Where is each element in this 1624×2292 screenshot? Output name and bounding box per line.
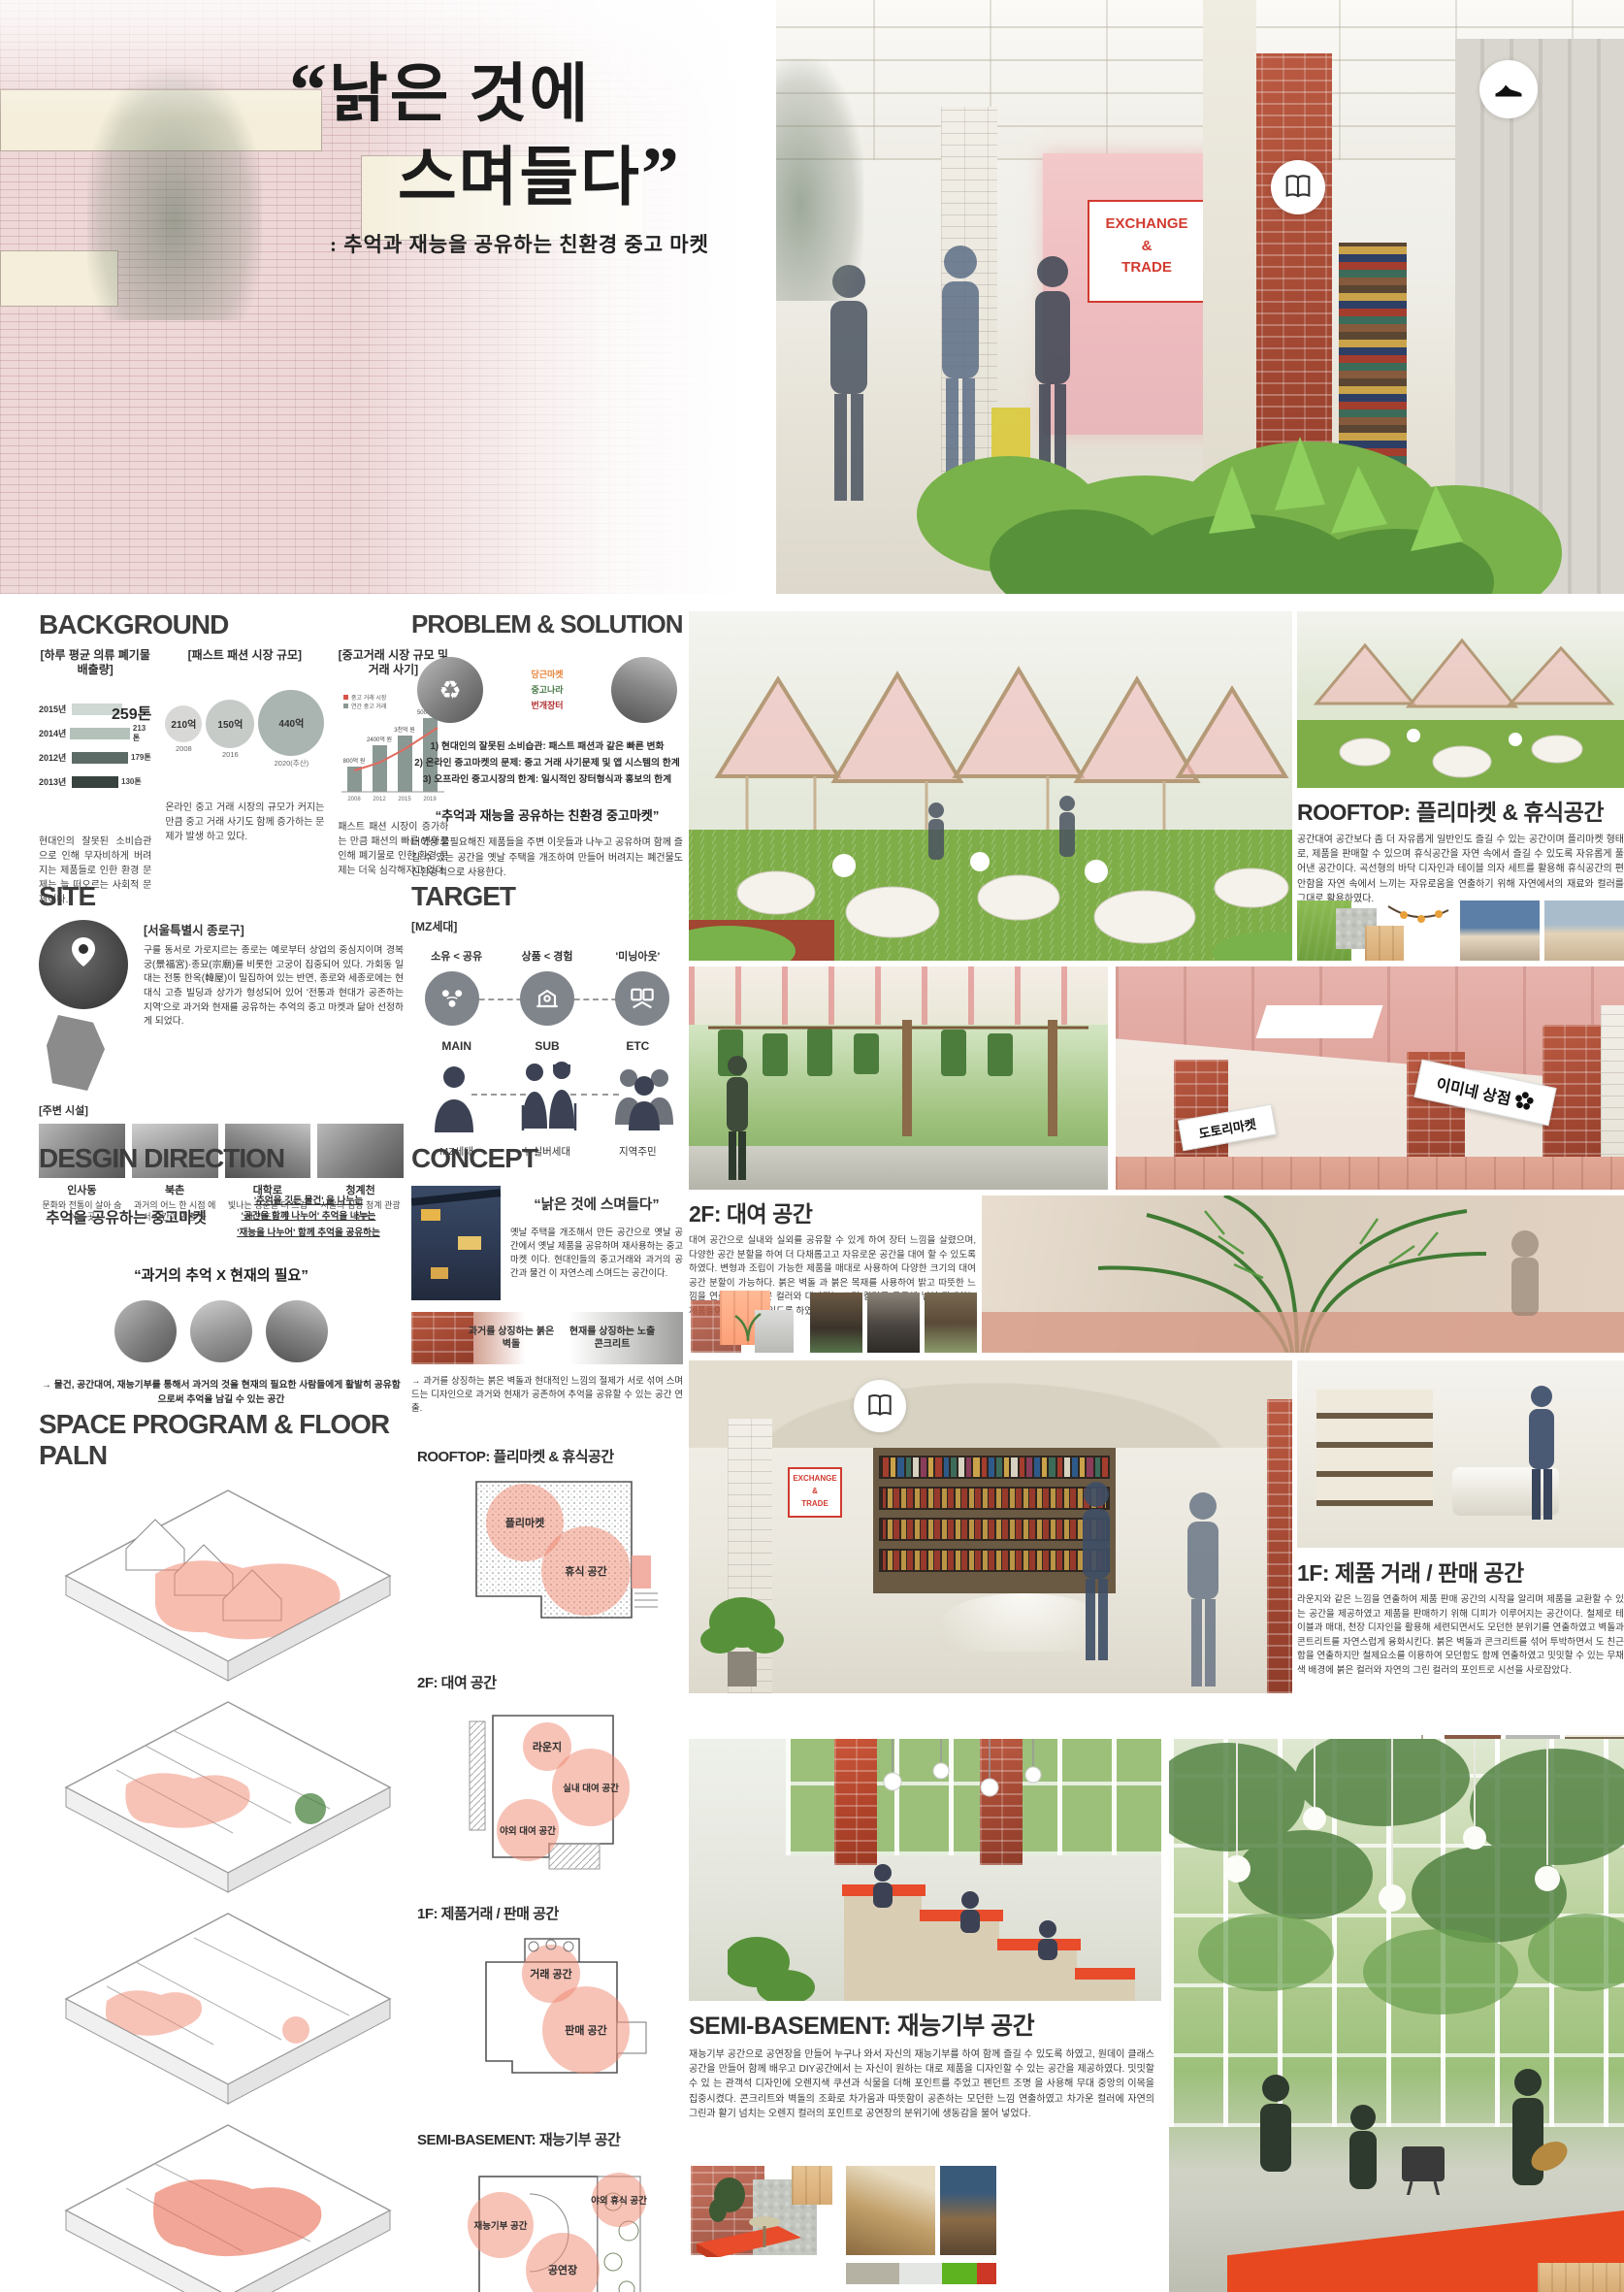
residents-group-icon <box>613 1064 675 1130</box>
pendant-globes <box>1198 1739 1595 1952</box>
key-photo <box>190 1300 252 1362</box>
problem-item: 2) 온라인 중고마켓의 문제: 중고 거래 사기문제 및 앱 시스템의 한계 <box>411 755 683 771</box>
rooftop-ref-photo <box>1460 900 1540 961</box>
lit-window <box>458 1236 481 1250</box>
trait-label: 상품 < 경험 <box>502 948 592 964</box>
site-text: 구를 동서로 가로지르는 종로는 예로부터 상업의 중심지이며 경복궁(景福宮)… <box>144 944 404 1030</box>
basement-zone-title: SEMI-BASEMENT: 재능기부 공간 <box>689 2007 1166 2042</box>
svg-text:실내 대여 공간: 실내 대여 공간 <box>563 1783 619 1794</box>
wood-step <box>1538 2263 1624 2292</box>
svg-text:2400억 원: 2400억 원 <box>367 736 392 743</box>
problem-list: 1) 현대인의 잘못된 소비습관: 패스트 패션과 같은 빠른 변화 2) 온라… <box>411 738 683 788</box>
palette-swatch <box>942 2263 977 2284</box>
foreground-plants <box>893 320 1572 594</box>
f1-people <box>1057 1477 1290 1693</box>
tier-rank: MAIN <box>411 1039 502 1053</box>
target-title: TARGET <box>411 881 683 912</box>
problem-item: 1) 현대인의 잘못된 소비습관: 패스트 패션과 같은 빠른 변화 <box>411 738 683 755</box>
close-quote: ” <box>641 131 681 215</box>
svg-text:야외 휴식 공간: 야외 휴식 공간 <box>591 2195 647 2207</box>
pink-wood-floor <box>1116 1157 1624 1190</box>
hanging-garments <box>708 1020 1088 1136</box>
plan-title-2f: 2F: 대여 공간 <box>417 1672 681 1692</box>
tier-rank: SUB <box>502 1039 592 1053</box>
bubble: 210억 <box>165 705 202 742</box>
shelf-wall <box>1316 1390 1433 1506</box>
palette-swatch <box>846 2263 899 2284</box>
market-photo <box>611 657 677 723</box>
potted-plant <box>698 1584 786 1693</box>
solution-text: 더이상 불필요해진 제품들을 주변 이웃들과 나누고 공유하며 함께 즐길 수 … <box>411 835 683 881</box>
book-icon <box>1271 160 1325 214</box>
string-lights-icon <box>1386 900 1450 939</box>
floorplans-column: ROOFTOP: 플리마켓 & 휴식공간 플리마켓 휴식 공간 2F: 대여 공… <box>417 1446 681 2292</box>
background-section: BACKGROUND [하루 평균 의류 폐기물 배출량] 259톤 2015년… <box>39 609 404 907</box>
wood-swatch <box>792 2166 832 2205</box>
concept-quote: “낡은 것에 스며들다” <box>510 1194 683 1214</box>
basement-ref-photo <box>846 2166 935 2255</box>
brick-sliver <box>1267 1399 1292 1693</box>
bar <box>70 728 130 739</box>
f2-render-right: 도토리마켓 이미네 상점 <box>1116 966 1624 1190</box>
roof-line <box>411 1189 501 1206</box>
orange-bench-icon <box>697 2209 803 2257</box>
rooftop-scene-side <box>1297 611 1624 788</box>
rooftop-render-side <box>1297 611 1624 788</box>
basement-render-right <box>1169 1739 1624 2292</box>
recycle-photo: ♻ <box>417 657 483 723</box>
space-program-title: SPACE PROGRAM & FLOOR PALN <box>39 1409 409 1471</box>
hero-section: EXCHANGE & TRADE <box>0 0 1624 594</box>
app-logos: 당근마켓 중고나라 번개장터 <box>505 667 589 714</box>
plan-title-1f: 1F: 제품거래 / 판매 공간 <box>417 1903 681 1923</box>
sharing-icon <box>425 971 479 1026</box>
floorplan-rooftop: 플리마켓 휴식 공간 <box>433 1472 666 1642</box>
map-pin-icon <box>72 937 95 966</box>
svg-text:플리마켓: 플리마켓 <box>505 1516 544 1529</box>
poster-subtitle: : 추억과 재능을 공유하는 친환경 중고 마켓 <box>330 229 929 258</box>
facilities-label: [주변 시설] <box>39 1102 404 1118</box>
chart-clothing-waste: [하루 평균 의류 폐기물 배출량] 259톤 2015년 2014년213톤 … <box>39 648 151 907</box>
rooftop-caption: ROOFTOP: 플리마켓 & 휴식공간 공간대여 공간보다 좀 더 자유롭게 … <box>1297 794 1624 906</box>
book-icon <box>854 1380 906 1432</box>
app-name: 중고나라 <box>505 682 589 698</box>
basement-caption: SEMI-BASEMENT: 재능기부 공간 재능기부 공간으로 공연장을 만들… <box>689 2007 1166 2121</box>
trait-label: '미닝아웃' <box>593 948 683 964</box>
poster-title: “낡은 것에 스며들다” <box>289 49 929 215</box>
shoe-icon <box>1479 60 1538 118</box>
bubble: 150억 <box>206 700 254 748</box>
basement-moodboard <box>691 2166 1166 2290</box>
tiered-seating <box>728 1846 1135 2001</box>
meaning-out-icon <box>615 971 669 1026</box>
rooftop-zone-text: 공간대여 공간보다 좀 더 자유롭게 일반인도 즐길 수 있는 공간이며 플리마… <box>1297 833 1624 906</box>
hero-title-block: “낡은 것에 스며들다” : 추억과 재능을 공유하는 친환경 중고 마켓 <box>289 49 929 258</box>
title-line1: 낡은 것에 <box>329 59 590 130</box>
trait-label: 소유 < 공유 <box>411 948 502 964</box>
space-program-section: SPACE PROGRAM & FLOOR PALN <box>39 1409 409 2292</box>
floorplan-2f: 라운지 실내 대여 공간 야외 대여 공간 <box>433 1698 666 1873</box>
f1-caption: 1F: 제품 거래 / 판매 공간 라운지와 같은 느낌을 연출하여 제품 판매… <box>1297 1555 1624 1678</box>
target-section: TARGET [MZ세대] 소유 < 공유 상품 < 경험 '미닝아웃' MAI… <box>411 881 683 1159</box>
svg-text:연간 중고 거래: 연간 중고 거래 <box>351 703 386 710</box>
basement-ref-photo <box>940 2166 996 2255</box>
rooftop-moodboard <box>1297 900 1624 961</box>
site-map <box>39 920 132 1091</box>
basement-render-left <box>689 1739 1161 2001</box>
svg-text:공연장: 공연장 <box>548 2263 577 2276</box>
plant-sprig <box>733 1308 763 1341</box>
pendant-lights <box>863 1739 1057 1807</box>
ceiling-light-panel <box>1255 1005 1382 1038</box>
people-photo <box>266 1300 328 1362</box>
problem-item: 3) 오프라인 중고시장의 한계: 일시적인 장터형식과 홍보의 한계 <box>411 771 683 788</box>
rooftop-zone-title: ROOFTOP: 플리마켓 & 휴식공간 <box>1297 794 1624 827</box>
direction-title: DESGIN DIRECTION <box>39 1143 404 1174</box>
experience-icon <box>520 971 574 1026</box>
direction-share-lines: '추억을 깃든 물건' 을 나누는 '공간을 함께 나누어' 추억을 나누는 '… <box>213 1194 404 1241</box>
material-past-label: 과거를 상징하는 붉은 벽돌 <box>468 1326 555 1351</box>
axonometric-diagram <box>39 1481 409 2292</box>
concept-title: CONCEPT <box>411 1143 683 1174</box>
f2-left-person <box>718 1054 757 1180</box>
palm-leaves <box>982 1195 1624 1353</box>
svg-text:야외 대여 공간: 야외 대여 공간 <box>500 1825 556 1837</box>
material-transition: 과거를 상징하는 붉은 벽돌 현재를 상징하는 노출 콘크리트 <box>411 1312 683 1364</box>
concept-conclusion: → 과거를 상징하는 붉은 벽돌과 현대적인 느낌의 절제가 서로 섞여 스며드… <box>411 1374 683 1415</box>
f2-zone-title: 2F: 대여 공간 <box>689 1195 976 1228</box>
design-direction-section: DESGIN DIRECTION 추억을 공유하는 중고마켓 '추억을 깃든 물… <box>39 1143 404 1407</box>
f2-ref-photo <box>925 1293 977 1353</box>
chart2-caption: 온라인 중고 거래 시장의 규모가 커지는 만큼 중고 거래 사기도 함께 증가… <box>165 801 324 844</box>
app-name: 당근마켓 <box>505 667 589 682</box>
lit-window <box>421 1209 440 1221</box>
brick-end <box>411 1312 473 1364</box>
chart1-highlight: 259톤 <box>112 701 151 724</box>
palm-photo <box>982 1195 1624 1353</box>
svg-text:2012: 2012 <box>374 797 387 802</box>
tier-rank: ETC <box>593 1039 683 1053</box>
f1-zone-title: 1F: 제품 거래 / 판매 공간 <box>1297 1555 1624 1588</box>
floorplan-1f: 거래 공간 판매 공간 <box>433 1929 666 2099</box>
pink-roof-frame <box>689 966 1108 1025</box>
rooftop-render <box>689 611 1292 961</box>
background-title: BACKGROUND <box>39 609 404 640</box>
exchange-trade-sign-small: EXCHANGE & TRADE <box>788 1467 842 1518</box>
sign-line: EXCHANGE <box>1089 213 1204 236</box>
material-present-label: 현재를 상징하는 노출 콘크리트 <box>568 1326 656 1351</box>
f2-render-left <box>689 966 1108 1190</box>
svg-text:재능기부 공간: 재능기부 공간 <box>473 2220 527 2232</box>
f1-render: EXCHANGE & TRADE <box>689 1360 1292 1693</box>
concept-text: 옛날 주택을 개조해서 만든 공간으로 옛날 공간에서 옛날 제품을 공유하며 … <box>510 1226 683 1280</box>
f1-zone-text: 라운지와 같은 느낌을 연출하여 제품 판매 공간의 시작을 알리며 제품을 교… <box>1297 1593 1624 1678</box>
bar <box>72 752 128 764</box>
concept-section: CONCEPT “낡은 것에 스며들다” 옛날 주택을 개조해서 만든 공간으로… <box>411 1143 683 1415</box>
f2-moodboard <box>691 1291 797 1353</box>
plan-title-basement: SEMI-BASEMENT: 재능기부 공간 <box>417 2129 681 2149</box>
solution-quote: “추억과 재능을 공유하는 친환경 중고마켓” <box>411 805 683 824</box>
rooftop-ref-photo <box>1544 900 1624 961</box>
site-location: [서울특별시 종로구] <box>144 920 404 938</box>
site-title: SITE <box>39 881 404 912</box>
lit-window <box>431 1267 448 1279</box>
direction-headline: 추억을 공유하는 중고마켓 <box>39 1206 213 1228</box>
svg-text:판매 공간: 판매 공간 <box>565 2023 607 2037</box>
svg-text:라운지: 라운지 <box>533 1740 562 1753</box>
f2-ref-photo <box>810 1293 862 1353</box>
f2-ref-photo <box>867 1293 920 1353</box>
silver-couple-icon <box>518 1061 578 1132</box>
direction-conclusion: → 물건, 공간대여, 재능기부를 통해서 과거의 것을 현재의 필요한 사람들… <box>39 1378 404 1407</box>
mz-person-icon <box>433 1064 475 1132</box>
open-quote: “ <box>289 48 329 132</box>
basement-zone-text: 재능기부 공간으로 공연장을 만들어 누구나 와서 자신의 재능기부를 하여 함… <box>689 2047 1154 2121</box>
svg-text:2015: 2015 <box>399 797 412 802</box>
direction-quote: “과거의 추억 X 현재의 필요” <box>39 1264 404 1285</box>
problem-title: PROBLEM & SOLUTION <box>411 609 683 639</box>
f1-side-person <box>1520 1384 1563 1520</box>
svg-text:휴식 공간: 휴식 공간 <box>565 1564 607 1578</box>
app-name: 번개장터 <box>505 698 589 713</box>
plan-title-rooftop: ROOFTOP: 플리마켓 & 휴식공간 <box>417 1446 681 1466</box>
svg-text:800억 원: 800억 원 <box>343 757 366 765</box>
palette-swatch <box>977 2263 996 2284</box>
palette-swatch <box>899 2263 942 2284</box>
memory-photo <box>114 1300 177 1362</box>
old-house-photo <box>411 1186 501 1300</box>
color-palette-strip <box>846 2263 996 2284</box>
f2-ref-photos <box>810 1293 977 1353</box>
problem-solution-section: PROBLEM & SOLUTION ♻ 당근마켓 중고나라 번개장터 1) 현… <box>411 609 683 881</box>
target-group: [MZ세대] <box>411 918 683 934</box>
district-shape <box>47 1015 105 1091</box>
title-line2: 스며들다 <box>398 143 641 213</box>
bubble: 440억 <box>258 690 324 756</box>
textured-arch <box>689 1360 1292 1448</box>
f1-render-side <box>1297 1360 1624 1548</box>
svg-text:중고 거래 시장: 중고 거래 시장 <box>351 694 387 702</box>
bar <box>72 776 118 788</box>
rooftop-scene <box>689 611 1292 961</box>
flower-icon <box>1512 1090 1536 1113</box>
svg-text:2008: 2008 <box>348 797 362 802</box>
svg-text:거래 공간: 거래 공간 <box>530 1967 572 1981</box>
chart-fast-fashion: [패스트 패션 시장 규모] 210억 2008 150억 2016 440억 … <box>165 648 324 907</box>
poster-root: EXCHANGE & TRADE <box>0 0 1624 2292</box>
floorplan-basement: 재능기부 공간 공연장 야외 휴식 공간 <box>433 2155 666 2292</box>
